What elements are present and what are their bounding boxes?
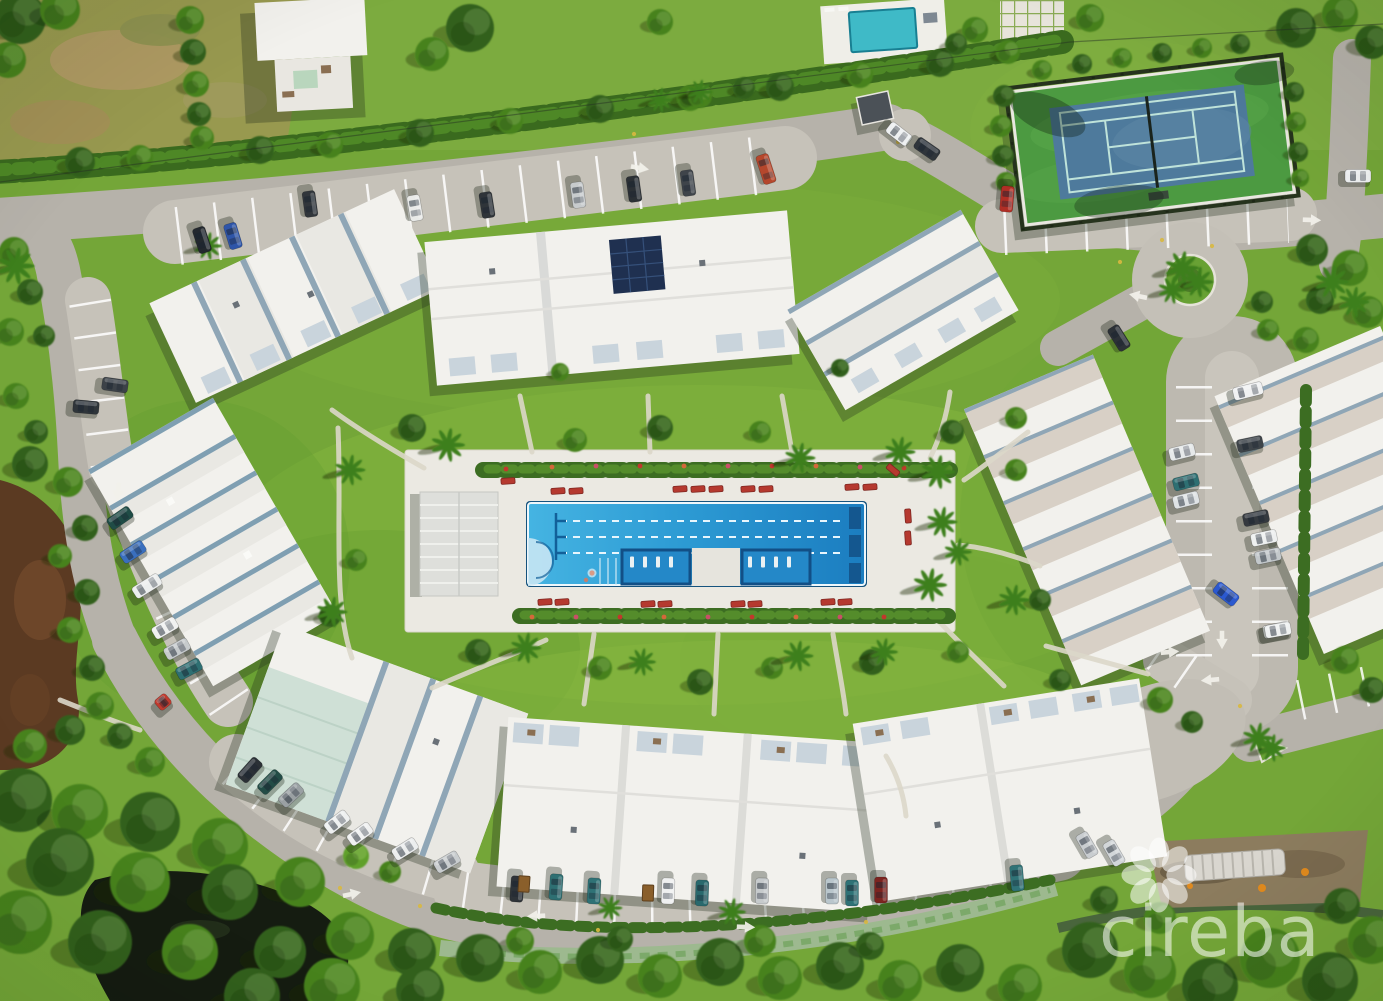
aerial-photo — [0, 0, 1383, 1001]
vignette — [0, 0, 1383, 1001]
aerial-photo-stage: cireba — [0, 0, 1383, 1001]
